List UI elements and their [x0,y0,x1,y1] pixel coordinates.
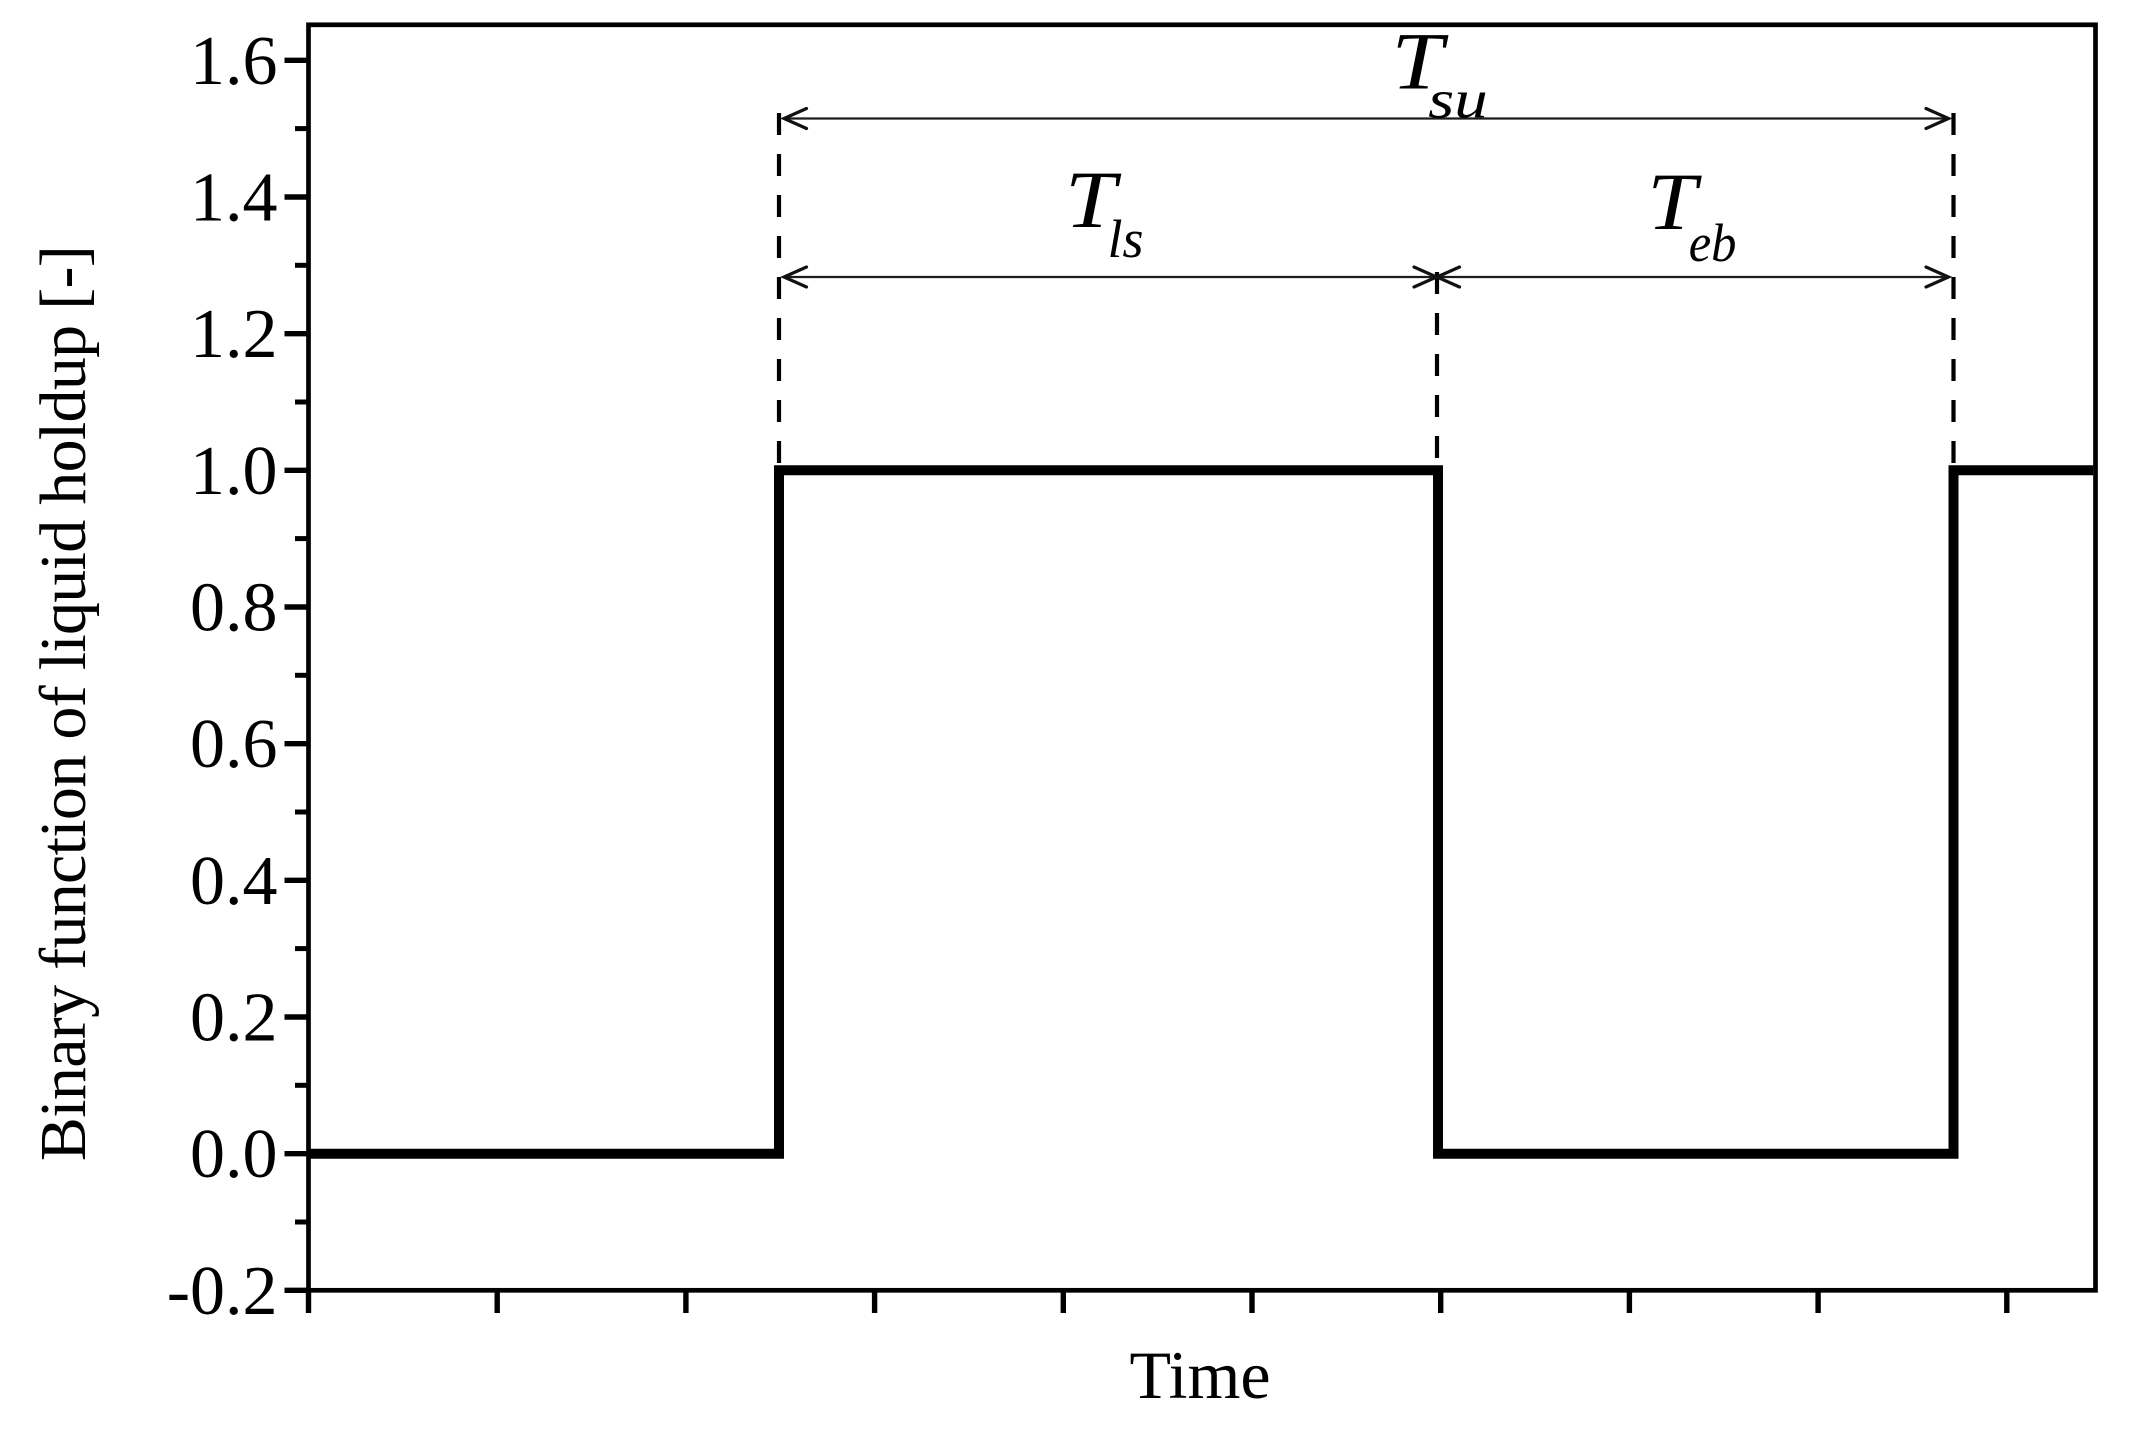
svg-text:0.8: 0.8 [190,570,278,647]
svg-text:0.2: 0.2 [190,980,278,1057]
svg-text:Time: Time [1129,1337,1270,1413]
svg-text:1.2: 1.2 [190,296,278,373]
svg-text:0.4: 0.4 [190,843,278,920]
svg-text:1.6: 1.6 [190,23,278,100]
svg-text:ls: ls [1108,209,1144,269]
svg-text:1.4: 1.4 [190,160,278,237]
svg-text:0.0: 0.0 [190,1116,278,1193]
svg-text:eb: eb [1689,214,1737,274]
svg-text:1.0: 1.0 [190,433,278,510]
svg-text:su: su [1428,71,1488,130]
svg-text:-0.2: -0.2 [167,1253,278,1330]
svg-text:Binary function of liquid hold: Binary function of liquid holdup [-] [27,246,100,1161]
svg-text:0.6: 0.6 [190,706,278,783]
